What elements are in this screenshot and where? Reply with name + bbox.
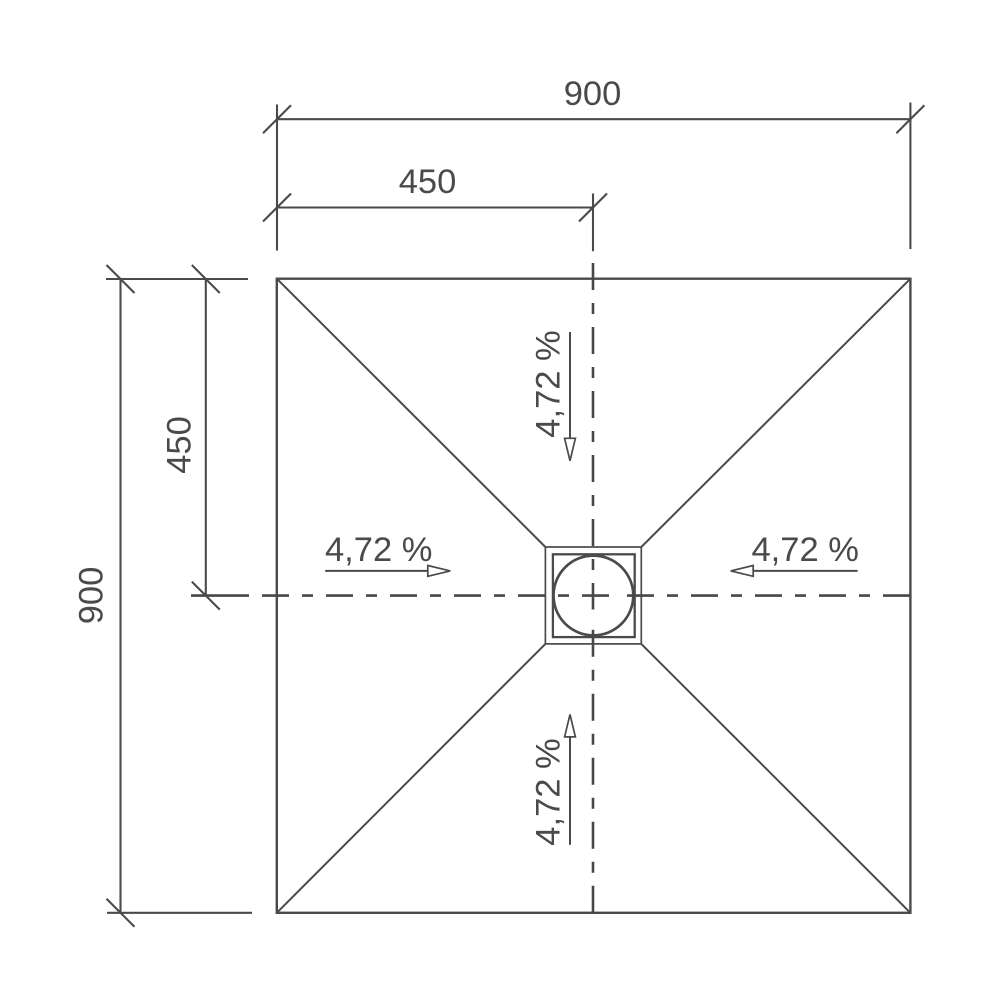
svg-text:4,72 %: 4,72 % (530, 738, 568, 845)
svg-text:450: 450 (399, 163, 457, 201)
svg-text:450: 450 (161, 416, 199, 474)
svg-text:4,72 %: 4,72 % (325, 531, 432, 569)
svg-text:900: 900 (564, 75, 622, 113)
svg-text:900: 900 (73, 567, 111, 625)
svg-text:4,72 %: 4,72 % (530, 330, 568, 437)
svg-text:4,72 %: 4,72 % (752, 531, 859, 569)
